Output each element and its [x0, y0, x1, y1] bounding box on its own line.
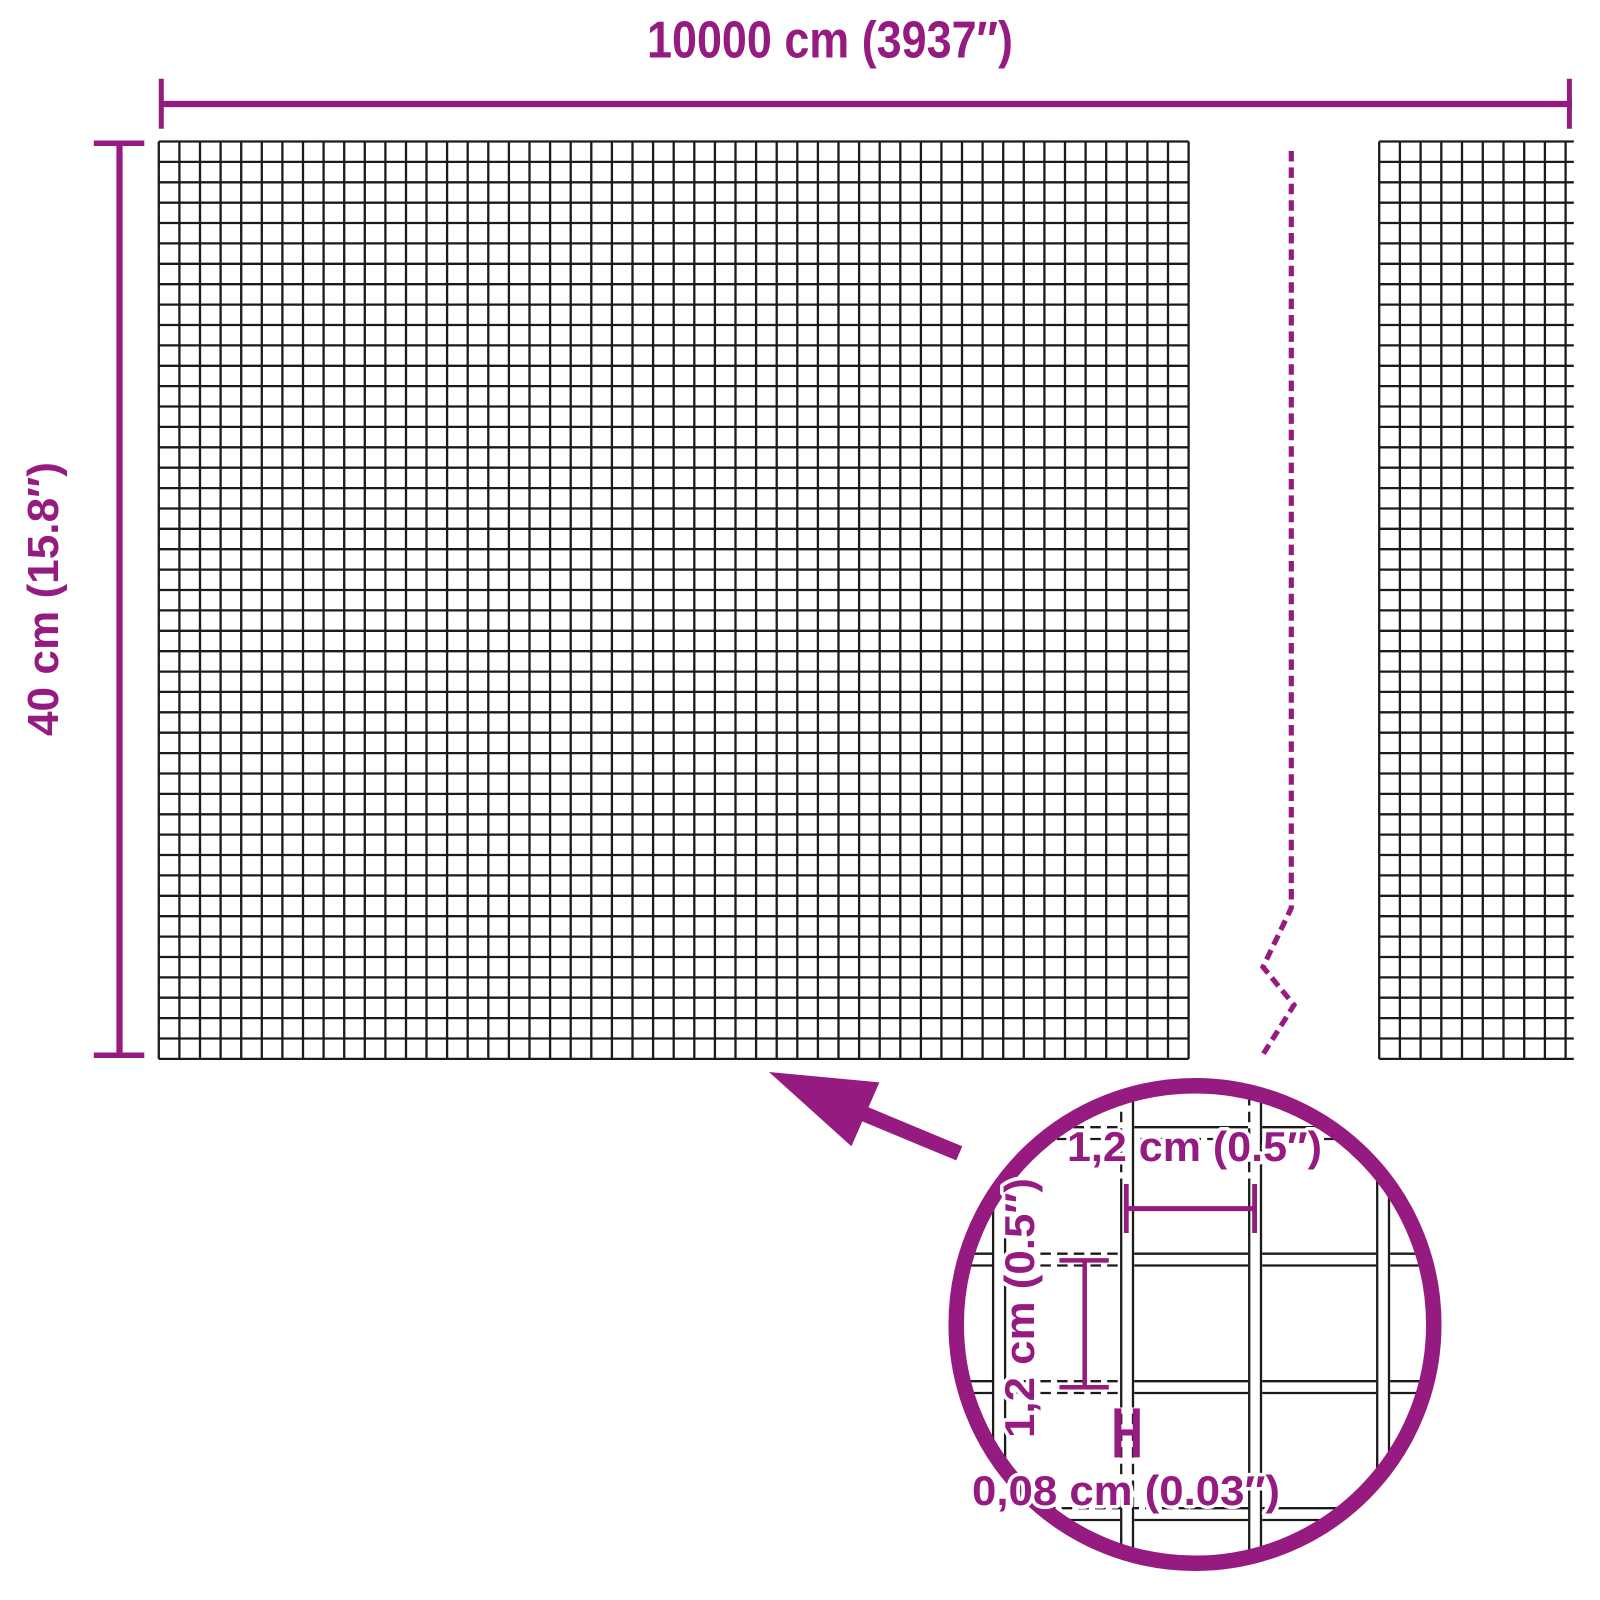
- svg-text:40 cm (15.8″): 40 cm (15.8″): [19, 462, 68, 736]
- svg-text:1,2 cm (0.5″): 1,2 cm (0.5″): [1067, 1123, 1322, 1170]
- svg-text:10000 cm (3937″): 10000 cm (3937″): [647, 12, 1013, 70]
- svg-text:1,2 cm (0.5″): 1,2 cm (0.5″): [996, 1178, 1043, 1438]
- svg-text:0,08 cm (0.03″): 0,08 cm (0.03″): [972, 1467, 1280, 1514]
